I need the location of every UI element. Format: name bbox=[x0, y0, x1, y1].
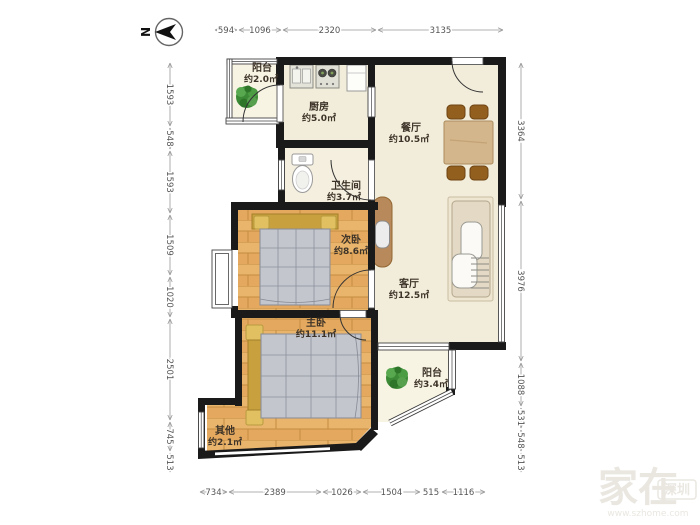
dimension-label: 1593 bbox=[164, 171, 174, 193]
watermark-url: www.szhome.com bbox=[607, 509, 688, 519]
wall bbox=[235, 316, 242, 406]
room-area: 约5.0㎡ bbox=[302, 112, 336, 124]
dimension-label: 515 bbox=[423, 488, 439, 498]
room-area: 约11.1㎡ bbox=[296, 328, 336, 340]
bed-second-icon bbox=[252, 214, 338, 305]
dimension-label: 1593 bbox=[164, 84, 174, 106]
wall bbox=[368, 57, 375, 87]
wall bbox=[368, 200, 375, 270]
fridge-icon bbox=[347, 65, 366, 91]
room-label: 阳台 bbox=[422, 366, 442, 379]
room-label: 卫生间 bbox=[331, 179, 361, 192]
dimension-label: 2389 bbox=[264, 488, 286, 498]
plant-icon bbox=[386, 367, 408, 390]
dimension-label: 2320 bbox=[319, 26, 341, 36]
watermark-city: 深圳 bbox=[664, 482, 690, 498]
floor-plan-drawing: 阳台 约2.0㎡ 厨房 约5.0㎡ 餐厅 约10.5㎡ 卫生间 约3.7㎡ 次卧… bbox=[0, 0, 700, 525]
dimensions-bottom: 7342389102615045151116 bbox=[200, 488, 485, 498]
dimension-label: 734 bbox=[205, 488, 221, 498]
stove-icon bbox=[316, 65, 339, 88]
dimension-label: 2501 bbox=[164, 359, 174, 381]
floor-plan-canvas: 阳台 约2.0㎡ 厨房 约5.0㎡ 餐厅 约10.5㎡ 卫生间 约3.7㎡ 次卧… bbox=[0, 0, 700, 525]
room-label: 客厅 bbox=[398, 277, 419, 290]
wall bbox=[231, 202, 378, 210]
sink-icon bbox=[290, 65, 313, 88]
room-label: 次卧 bbox=[341, 233, 361, 246]
dimension-label: 1026 bbox=[331, 488, 353, 498]
dimension-label: 1088 bbox=[515, 374, 525, 396]
sofa-icon bbox=[448, 197, 493, 301]
room-area: 约3.7㎡ bbox=[327, 191, 361, 203]
room-label: 其他 bbox=[215, 424, 235, 437]
bathroom-door bbox=[369, 160, 375, 200]
room-area: 约3.4㎡ bbox=[414, 378, 448, 390]
balcony-door bbox=[277, 85, 283, 122]
dimension-label: 1096 bbox=[249, 26, 271, 36]
dimension-label: 1020 bbox=[164, 286, 174, 308]
dimension-label: 1116 bbox=[453, 488, 475, 498]
dimension-label: 3976 bbox=[515, 270, 525, 292]
room-area: 约2.0㎡ bbox=[244, 73, 278, 85]
room-area: 约10.5㎡ bbox=[389, 133, 429, 145]
bay-window bbox=[212, 250, 232, 308]
dimension-label: 594 bbox=[218, 26, 234, 36]
room-area: 约2.1㎡ bbox=[208, 436, 242, 448]
dimension-label: 531 bbox=[515, 410, 525, 426]
dimension-label: 3364 bbox=[515, 120, 525, 142]
dimensions-left: 15935481593150910202501745513 bbox=[164, 63, 174, 472]
bed-master-icon bbox=[246, 325, 361, 425]
wall bbox=[498, 57, 506, 207]
wall bbox=[371, 316, 378, 430]
wall bbox=[368, 117, 375, 160]
dimension-label: 745 bbox=[164, 428, 174, 444]
dimension-label: 3135 bbox=[430, 26, 452, 36]
room-label: 餐厅 bbox=[400, 121, 421, 134]
wall bbox=[449, 342, 506, 350]
room-area: 约12.5㎡ bbox=[389, 289, 429, 301]
room-label: 厨房 bbox=[309, 100, 329, 113]
bedroom-master-door bbox=[340, 311, 366, 318]
wall bbox=[231, 202, 238, 250]
compass-icon: N bbox=[139, 19, 183, 46]
wall bbox=[231, 310, 341, 318]
room-label: 阳台 bbox=[252, 61, 272, 74]
dimension-label: 1504 bbox=[381, 488, 403, 498]
dimension-label: 548 bbox=[515, 432, 525, 448]
dimension-label: 513 bbox=[515, 454, 525, 470]
entrance-door bbox=[452, 58, 483, 65]
wall bbox=[276, 140, 375, 148]
dimensions-top: 594109623203135 bbox=[215, 26, 503, 36]
room-area: 约8.6㎡ bbox=[334, 245, 368, 257]
dimensions-right: 336439761088531548513 bbox=[515, 63, 525, 472]
compass-label: N bbox=[139, 27, 153, 37]
dimension-label: 548 bbox=[164, 130, 174, 146]
dimension-label: 1509 bbox=[164, 234, 174, 256]
wall bbox=[276, 57, 452, 65]
dimension-label: 513 bbox=[164, 454, 174, 470]
bedroom-second-door bbox=[369, 270, 375, 308]
toilet-icon bbox=[292, 154, 313, 193]
watermark: 家在 深圳 www.szhome.com bbox=[598, 465, 696, 519]
room-label: 主卧 bbox=[306, 316, 326, 329]
